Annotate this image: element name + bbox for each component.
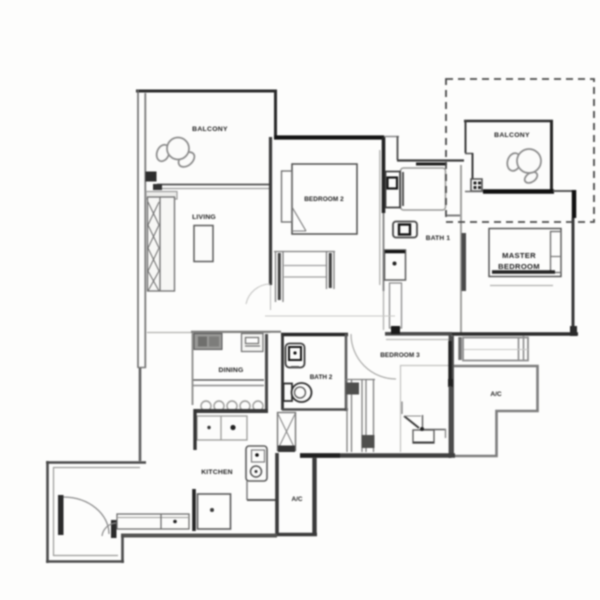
svg-text:MASTER: MASTER bbox=[502, 251, 536, 260]
svg-text:KITCHEN: KITCHEN bbox=[201, 469, 233, 476]
svg-text:BATH 1: BATH 1 bbox=[426, 235, 451, 242]
svg-text:BATH 2: BATH 2 bbox=[310, 374, 333, 381]
svg-text:A/C: A/C bbox=[291, 496, 302, 503]
svg-text:BALCONY: BALCONY bbox=[494, 132, 530, 139]
svg-text:BEDROOM 2: BEDROOM 2 bbox=[304, 196, 344, 203]
svg-text:BEDROOM 3: BEDROOM 3 bbox=[380, 352, 420, 359]
svg-text:BALCONY: BALCONY bbox=[192, 126, 228, 133]
svg-text:BEDROOM: BEDROOM bbox=[498, 262, 540, 271]
svg-text:LIVING: LIVING bbox=[192, 214, 216, 221]
svg-text:A/C: A/C bbox=[490, 391, 502, 398]
svg-text:DINING: DINING bbox=[219, 367, 244, 374]
